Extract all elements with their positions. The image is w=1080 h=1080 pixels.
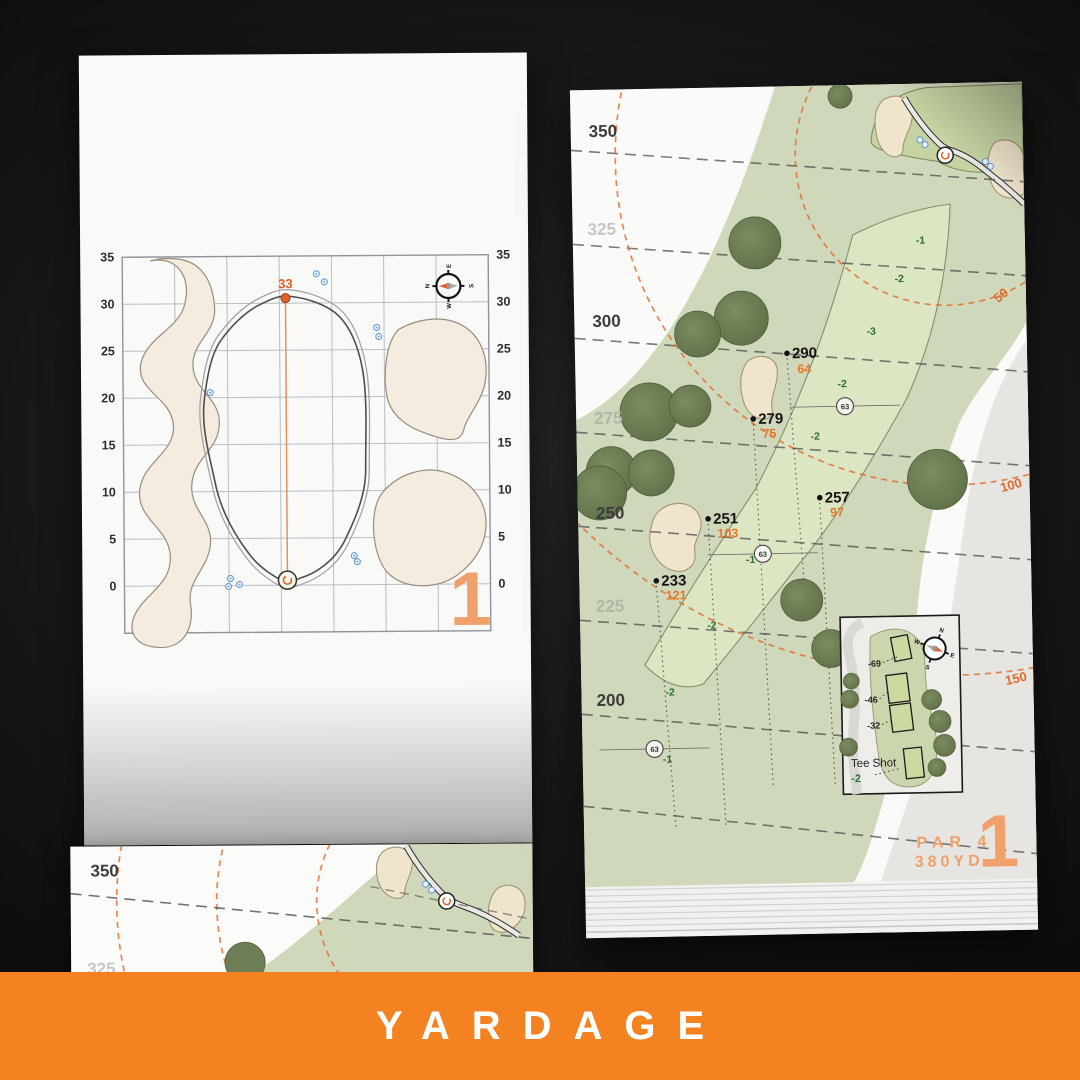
slope-label: -2 — [837, 378, 847, 390]
bunkers — [129, 256, 488, 647]
green-chart-page: 33 35 30 25 2 — [79, 52, 533, 845]
yardage-scale-label: 225 — [596, 596, 625, 616]
green-chart-map: 33 35 30 25 2 — [79, 52, 533, 845]
slope-label: -3 — [866, 326, 876, 338]
axis-label: 25 — [101, 344, 115, 358]
page-corner-curl — [870, 82, 1025, 235]
axis-label: 10 — [498, 483, 512, 497]
tee-box — [891, 635, 912, 662]
sprinkler-yardage: 63 — [841, 402, 850, 411]
tee-shot-inset: -69 -46 -32 Tee Shot -2 N E S W — [837, 615, 965, 794]
tree — [674, 311, 721, 358]
pin-yardage: 97 — [830, 505, 844, 519]
slope-label: -2 — [894, 273, 904, 285]
pin-line — [285, 301, 287, 578]
compass-n: N — [425, 284, 431, 288]
yardage-scale-label: 350 — [589, 122, 618, 142]
yardage-scale-label: 250 — [596, 503, 625, 523]
green-outline — [199, 289, 371, 589]
bunker — [385, 319, 487, 440]
pin-marker — [281, 294, 290, 303]
tee-distance-label: -46 — [865, 695, 878, 705]
flag-marker — [439, 893, 455, 909]
slope-label: -2 — [707, 620, 717, 632]
tree — [933, 734, 955, 756]
axis-label: 0 — [109, 579, 116, 593]
yardage-scale-label: 275 — [594, 408, 623, 428]
pin-yardage-label: 33 — [278, 276, 293, 291]
tree — [669, 385, 712, 428]
tee-shot-title: Tee Shot — [851, 757, 897, 770]
hole-number: 1 — [977, 799, 1020, 883]
tee-distance-label: -69 — [868, 659, 881, 669]
carry-yardage: 290 — [792, 345, 817, 362]
axis-label: 35 — [496, 248, 510, 262]
pin-yardage: 121 — [665, 588, 686, 602]
yardage-banner: YARDAGE — [0, 972, 1080, 1080]
tee-distance-label: -32 — [867, 721, 880, 731]
hole-map-page: 63 63 63 -1 -2 -3 -2 -2 -1 -2 -2 -1 290 … — [570, 82, 1038, 939]
sprinkler-yardage: 63 — [759, 550, 768, 559]
folded-page-partial-map: 350 325 — [70, 843, 533, 979]
tee-box — [886, 673, 910, 703]
tee-shot-slope: -2 — [851, 773, 861, 785]
page-curl-shadow — [83, 682, 532, 845]
axis-label: 15 — [497, 436, 511, 450]
tree — [728, 216, 781, 269]
slope-label: -2 — [810, 431, 820, 443]
pin-yardage: 103 — [717, 526, 738, 540]
yardage-scale-label: 325 — [587, 220, 616, 240]
slope-label: -2 — [665, 687, 675, 699]
pin-yardage: 75 — [762, 427, 776, 441]
distance-label: 380YD — [915, 853, 984, 871]
compass-s: S — [469, 284, 475, 288]
green-entry-marker — [278, 571, 296, 589]
slope-label: -1 — [663, 754, 673, 766]
axis-label: 15 — [102, 438, 116, 452]
tee-box — [889, 703, 913, 732]
carry-yardage: 257 — [825, 489, 850, 506]
axis-label: 20 — [497, 389, 511, 403]
axis-label: 30 — [496, 295, 510, 309]
page-stack-edges — [585, 879, 1038, 939]
sprinkler-yardage: 63 — [650, 745, 659, 754]
tree — [921, 689, 941, 709]
yardage-scale-label: 200 — [596, 690, 625, 710]
hole-map: 63 63 63 -1 -2 -3 -2 -2 -1 -2 -2 -1 290 … — [570, 82, 1038, 939]
axis-label: 20 — [101, 391, 115, 405]
yardage-scale-label: 300 — [592, 311, 621, 331]
tee-box — [903, 747, 924, 779]
tree — [714, 291, 769, 346]
hole-number: 1 — [449, 557, 492, 642]
axis-label: 5 — [498, 530, 505, 544]
slope-label: -1 — [916, 235, 926, 247]
axis-label: 10 — [102, 485, 116, 499]
compass-e: E — [447, 264, 453, 268]
axis-labels-left: 35 30 25 20 15 10 5 0 — [100, 250, 116, 593]
axis-label: 25 — [497, 342, 511, 356]
axis-labels-right: 35 30 25 20 15 10 5 0 — [496, 248, 512, 591]
slope-label: -1 — [746, 554, 756, 566]
tree — [929, 710, 951, 732]
axis-label: 0 — [498, 577, 505, 591]
tree — [840, 690, 858, 708]
tree — [928, 758, 946, 776]
tree — [628, 449, 675, 496]
pin-yardage: 64 — [797, 362, 811, 376]
compass-w: W — [447, 303, 453, 309]
tree — [843, 673, 859, 689]
axis-label: 5 — [109, 532, 116, 546]
axis-label: 30 — [101, 297, 115, 311]
partial-hole-map: 350 325 — [70, 843, 533, 979]
yardage-book-left: 33 35 30 25 2 — [79, 52, 533, 979]
tree — [839, 738, 857, 756]
axis-label: 35 — [100, 250, 114, 264]
tree — [828, 84, 852, 108]
tree — [907, 449, 968, 510]
carry-yardage: 279 — [758, 410, 783, 427]
carry-yardage: 233 — [661, 572, 686, 589]
carry-yardage: 251 — [713, 510, 738, 527]
yardage-scale-label: 350 — [90, 861, 119, 880]
tree — [780, 579, 823, 622]
banner-title: YARDAGE — [354, 1004, 726, 1049]
